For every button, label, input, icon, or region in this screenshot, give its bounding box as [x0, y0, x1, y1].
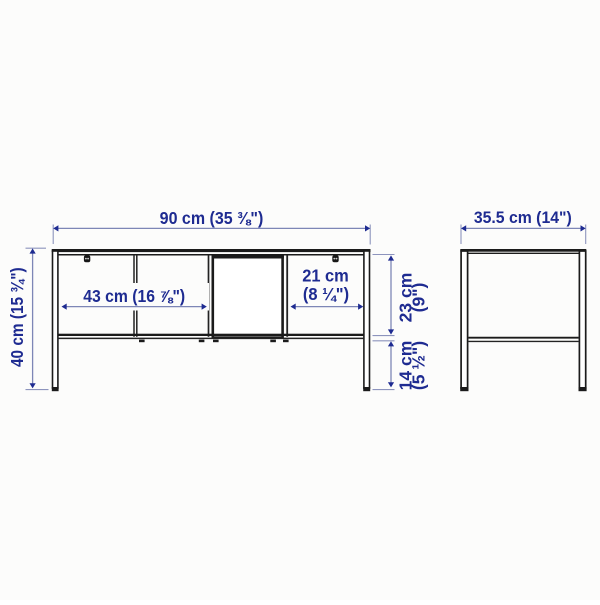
- svg-text:43 cm (16 ⅞"): 43 cm (16 ⅞"): [83, 286, 185, 306]
- svg-text:35.5 cm (14"): 35.5 cm (14"): [474, 209, 572, 228]
- svg-text:(8 ¼"): (8 ¼"): [303, 284, 349, 304]
- svg-text:(9"): (9"): [409, 283, 429, 313]
- svg-text:40 cm (15 ¾"): 40 cm (15 ¾"): [8, 267, 27, 367]
- svg-text:(5 ½"): (5 ½"): [409, 341, 429, 390]
- svg-text:90 cm (35 ⅜"): 90 cm (35 ⅜"): [160, 208, 264, 228]
- svg-text:21 cm: 21 cm: [302, 266, 349, 286]
